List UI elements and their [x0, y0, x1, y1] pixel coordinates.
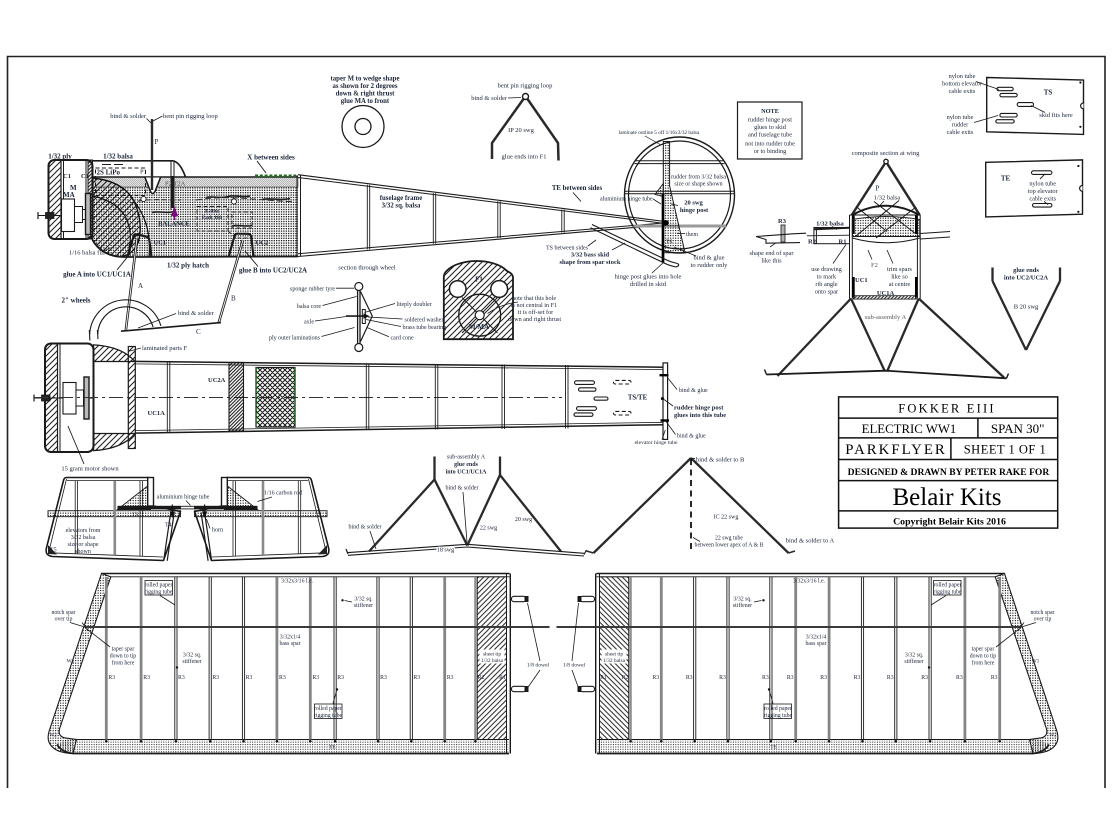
svg-text:nylon tube: nylon tube [1029, 181, 1056, 188]
svg-text:R3: R3 [652, 675, 659, 681]
svg-text:stiffener: stiffener [354, 602, 373, 609]
svg-text:laminated parts F: laminated parts F [142, 345, 188, 352]
svg-text:B: B [231, 295, 236, 303]
svg-text:section through wheel: section through wheel [338, 265, 396, 272]
svg-text:them: them [686, 232, 698, 238]
svg-text:T4: T4 [165, 523, 172, 529]
svg-text:R3: R3 [778, 218, 787, 225]
svg-text:stiffener: stiffener [182, 658, 201, 665]
svg-text:size or shape: size or shape [68, 542, 99, 548]
svg-text:SPAN 30": SPAN 30" [991, 421, 1045, 436]
svg-text:rib angle: rib angle [815, 281, 837, 288]
svg-text:1/8 dowel: 1/8 dowel [527, 663, 550, 669]
svg-text:size or shape shown: size or shape shown [674, 182, 722, 188]
svg-text:3/32x3/16 l.e.: 3/32x3/16 l.e. [281, 579, 314, 585]
svg-text:nylon tube: nylon tube [947, 114, 974, 121]
svg-text:UC2A: UC2A [208, 377, 226, 384]
svg-text:to mark: to mark [817, 274, 837, 281]
svg-text:sub-assembly A: sub-assembly A [447, 455, 486, 461]
svg-text:into UC2/UC2A: into UC2/UC2A [1004, 275, 1049, 282]
svg-text:E-flite: E-flite [205, 209, 220, 215]
svg-text:SHEET 1 OF 1: SHEET 1 OF 1 [964, 442, 1047, 456]
svg-text:aluminium hinge tube: aluminium hinge tube [157, 495, 210, 501]
svg-text:R3: R3 [337, 675, 344, 681]
svg-text:3/32 sq. balsa: 3/32 sq. balsa [382, 203, 421, 210]
svg-text:C1: C1 [81, 173, 89, 180]
svg-text:bind & solder: bind & solder [110, 113, 147, 120]
svg-text:bent pin rigging loop: bent pin rigging loop [498, 83, 553, 90]
svg-text:TS: TS [1044, 89, 1053, 97]
svg-text:3/32 sq.: 3/32 sq. [905, 653, 924, 659]
svg-text:P: P [155, 138, 159, 146]
svg-text:cable exits: cable exits [947, 129, 974, 136]
svg-text:glue ends: glue ends [1013, 267, 1039, 274]
svg-text:FOKKER EIII: FOKKER EIII [898, 402, 995, 416]
svg-text:R3: R3 [686, 675, 693, 681]
svg-text:IC 22 swg: IC 22 swg [714, 515, 739, 521]
svg-text:3/32x3/16 l.e.: 3/32x3/16 l.e. [793, 579, 826, 585]
svg-text:3/32 sq.: 3/32 sq. [733, 597, 752, 603]
svg-text:bass spar: bass spar [279, 641, 300, 647]
svg-text:glues to skid: glues to skid [754, 124, 787, 131]
svg-text:15 gram motor shown: 15 gram motor shown [61, 466, 119, 473]
svg-text:R3: R3 [108, 675, 115, 681]
svg-text:from here: from here [112, 660, 135, 667]
svg-text:TS/TE: TS/TE [628, 395, 648, 402]
svg-text:1/32 balsa: 1/32 balsa [816, 221, 844, 228]
svg-text:1/32 balsa: 1/32 balsa [603, 658, 626, 664]
svg-text:R3: R3 [854, 675, 861, 681]
svg-text:is not central in F1: is not central in F1 [511, 302, 557, 309]
svg-text:UC1: UC1 [154, 240, 167, 247]
svg-text:not into rudder tube: not into rudder tube [745, 141, 795, 148]
svg-text:UC1A: UC1A [148, 410, 166, 417]
svg-text:DESIGNED & DRAWN BY PETER RAKE: DESIGNED & DRAWN BY PETER RAKE FOR [848, 467, 1051, 478]
svg-text:22 swg: 22 swg [480, 526, 497, 532]
svg-text:ELECTRIC WW1: ELECTRIC WW1 [862, 422, 957, 436]
svg-text:fuselage frame: fuselage frame [380, 195, 422, 202]
svg-text:20 swg: 20 swg [684, 200, 703, 207]
svg-text:aluminium hinge tube: aluminium hinge tube [600, 197, 653, 203]
svg-text:R2: R2 [478, 675, 485, 681]
svg-text:soldered washer: soldered washer [405, 318, 444, 324]
svg-text:card cone: card cone [391, 336, 414, 342]
svg-text:C1: C1 [63, 173, 71, 180]
svg-text:notch spar: notch spar [1031, 610, 1055, 616]
svg-text:shape from spar stock: shape from spar stock [560, 259, 621, 266]
svg-text:onto spar: onto spar [815, 289, 839, 296]
svg-text:like so: like so [891, 274, 908, 281]
svg-text:skid fits here: skid fits here [1039, 112, 1073, 119]
svg-text:it is off-set for: it is off-set for [518, 309, 553, 316]
svg-text:18 swg: 18 swg [437, 548, 454, 554]
svg-text:P: P [876, 185, 880, 193]
svg-text:1/16 balsa fill: 1/16 balsa fill [69, 250, 105, 257]
svg-text:MA: MA [63, 191, 75, 199]
svg-text:composite section at wing: composite section at wing [852, 150, 920, 157]
svg-text:R3: R3 [246, 675, 253, 681]
svg-text:NOTE: NOTE [761, 108, 779, 115]
svg-text:R2: R2 [808, 239, 816, 246]
svg-text:into UC1/UC1A: into UC1/UC1A [446, 470, 488, 476]
svg-text:rudder: rudder [952, 122, 969, 129]
svg-text:1/32 balsa: 1/32 balsa [103, 153, 133, 161]
svg-text:down and right thrust: down and right thrust [508, 316, 561, 323]
svg-text:W2: W2 [1049, 733, 1057, 739]
svg-text:or to binding: or to binding [754, 148, 787, 155]
svg-text:trim spars: trim spars [887, 266, 913, 273]
svg-text:R2: R2 [622, 675, 629, 681]
svg-text:at centre: at centre [889, 281, 911, 288]
svg-text:glue B into UC2/UC2A: glue B into UC2/UC2A [239, 267, 307, 275]
svg-text:1/8 dowel: 1/8 dowel [563, 663, 586, 669]
svg-text:TE between sides: TE between sides [552, 185, 603, 192]
svg-text:F1: F1 [475, 276, 483, 284]
svg-text:sub-assembly A: sub-assembly A [865, 314, 907, 321]
svg-text:R3: R3 [820, 675, 827, 681]
svg-text:R3: R3 [921, 675, 928, 681]
svg-text:X between sides: X between sides [247, 154, 295, 162]
svg-text:TS: TS [665, 240, 672, 246]
svg-text:and fuselage tube: and fuselage tube [748, 132, 792, 139]
svg-text:Park 180: Park 180 [202, 215, 222, 221]
svg-text:laminate outline 5 off 1/16x3/: laminate outline 5 off 1/16x3/32 balsa [619, 129, 700, 136]
svg-text:taper spar: taper spar [112, 647, 135, 653]
svg-text:R3: R3 [956, 675, 963, 681]
svg-text:B 20 swg: B 20 swg [1014, 304, 1039, 311]
svg-text:1/16 carbon rod: 1/16 carbon rod [264, 491, 302, 497]
svg-text:W1: W1 [67, 659, 75, 665]
svg-text:IP 20 swg: IP 20 swg [508, 127, 535, 134]
svg-text:1/32 ply: 1/32 ply [48, 153, 72, 161]
svg-text:over tip: over tip [1034, 617, 1052, 623]
svg-text:elevators from: elevators from [66, 527, 101, 534]
svg-text:rigging tube: rigging tube [933, 590, 962, 596]
svg-text:down & right thrust: down & right thrust [336, 91, 395, 98]
svg-text:elevator hinge tube: elevator hinge tube [635, 440, 678, 446]
svg-text:axle: axle [304, 320, 314, 326]
svg-text:rigging tube: rigging tube [314, 713, 343, 719]
svg-text:R3: R3 [991, 675, 998, 681]
svg-text:as shown for 2 degrees: as shown for 2 degrees [332, 83, 397, 90]
svg-text:R3: R3 [887, 675, 894, 681]
svg-text:A: A [138, 282, 143, 290]
svg-text:UC1: UC1 [855, 277, 868, 284]
svg-text:rolled paper: rolled paper [934, 583, 962, 589]
svg-text:Copyright Belair Kits 2016: Copyright Belair Kits 2016 [893, 517, 1006, 528]
svg-text:R1: R1 [600, 675, 607, 681]
svg-text:UC2: UC2 [256, 240, 269, 247]
svg-text:rigging tube: rigging tube [144, 590, 173, 596]
svg-text:bind & glue: bind & glue [693, 255, 724, 262]
svg-text:3/32 bass skid: 3/32 bass skid [571, 252, 610, 259]
svg-text:top elevator: top elevator [1028, 188, 1059, 195]
svg-text:C: C [196, 328, 201, 336]
svg-text:3/32 sq.: 3/32 sq. [183, 653, 202, 659]
svg-text:balsa core: balsa core [297, 304, 321, 310]
svg-text:use drawing: use drawing [811, 266, 842, 273]
svg-text:Belair Kits: Belair Kits [892, 484, 1001, 511]
svg-text:cable exits: cable exits [949, 88, 976, 95]
svg-text:bass spar: bass spar [805, 641, 826, 647]
svg-text:glue ends: glue ends [454, 462, 479, 468]
svg-text:rolled paper: rolled paper [314, 706, 342, 712]
svg-text:1/32 ply hatch: 1/32 ply hatch [167, 262, 209, 270]
svg-text:glues into this tube: glues into this tube [674, 412, 726, 419]
svg-text:R3: R3 [762, 675, 769, 681]
svg-text:stiffener: stiffener [904, 658, 923, 665]
svg-text:TS: TS [132, 512, 138, 518]
svg-text:T5: T5 [50, 548, 57, 554]
svg-text:hinge post glues into hole: hinge post glues into hole [615, 274, 682, 281]
svg-text:stiffener: stiffener [733, 602, 752, 609]
svg-text:taper spar: taper spar [972, 647, 995, 653]
svg-text:rolled paper: rolled paper [145, 583, 173, 589]
svg-text:BALANCE: BALANCE [158, 221, 190, 228]
svg-text:to rudder only: to rudder only [691, 262, 729, 269]
svg-text:bind & solder: bind & solder [178, 310, 215, 317]
svg-text:R3: R3 [212, 675, 219, 681]
svg-text:1/32 balsa: 1/32 balsa [874, 195, 901, 202]
svg-text:3/32x1/4: 3/32x1/4 [280, 635, 301, 641]
svg-text:R3: R3 [279, 675, 286, 681]
svg-text:R3: R3 [312, 675, 319, 681]
svg-text:rolled paper: rolled paper [764, 706, 792, 712]
svg-text:R3: R3 [143, 675, 150, 681]
svg-text:down to tip: down to tip [970, 654, 997, 660]
svg-text:R3: R3 [787, 675, 794, 681]
svg-text:nylon tube: nylon tube [949, 73, 976, 80]
svg-text:glue ends into F1: glue ends into F1 [502, 154, 547, 161]
svg-text:22 swg tube: 22 swg tube [715, 536, 743, 542]
svg-text:R3: R3 [719, 675, 726, 681]
svg-text:PARKFLYER: PARKFLYER [845, 442, 947, 458]
svg-text:1/32 balsa: 1/32 balsa [481, 658, 504, 664]
svg-text:taper M to wedge shape: taper M to wedge shape [331, 76, 400, 83]
svg-text:liteply doubler: liteply doubler [397, 302, 432, 308]
svg-text:TE: TE [1001, 175, 1011, 183]
svg-text:R3: R3 [178, 675, 185, 681]
svg-text:sponge rubber tyre: sponge rubber tyre [290, 287, 335, 293]
svg-text:TE: TE [770, 745, 777, 751]
svg-text:20 swg: 20 swg [515, 517, 532, 523]
svg-text:P2 T2A: P2 T2A [165, 181, 186, 188]
svg-text:R1: R1 [839, 239, 847, 246]
svg-text:3/32 sq.: 3/32 sq. [354, 597, 373, 603]
svg-text:rigging tube: rigging tube [764, 713, 793, 719]
svg-text:sheet tip: sheet tip [483, 652, 501, 658]
svg-text:M/MA: M/MA [469, 323, 489, 331]
svg-text:bind & solder to A: bind & solder to A [786, 538, 835, 545]
svg-text:bind & solder: bind & solder [446, 486, 479, 492]
svg-text:W1: W1 [1032, 659, 1040, 665]
svg-text:rudder hinge post: rudder hinge post [748, 117, 792, 124]
svg-text:3/32x1/4: 3/32x1/4 [806, 635, 827, 641]
svg-text:down to tip: down to tip [110, 654, 137, 660]
svg-text:bind & solder: bind & solder [471, 95, 508, 102]
svg-text:brass tube bearing: brass tube bearing [403, 325, 447, 331]
svg-text:sheet tip: sheet tip [605, 652, 623, 658]
svg-text:glue A into UC1/UC1A: glue A into UC1/UC1A [63, 271, 131, 279]
svg-text:rudder hinge post: rudder hinge post [674, 405, 724, 412]
svg-text:bent pin rigging loop: bent pin rigging loop [163, 113, 218, 120]
svg-text:between lower apex of A & B: between lower apex of A & B [695, 542, 764, 549]
svg-text:from here: from here [972, 660, 995, 667]
svg-text:shape end of spar: shape end of spar [750, 250, 795, 257]
svg-text:bind & solder to B: bind & solder to B [696, 457, 745, 464]
svg-text:2S LiPo: 2S LiPo [97, 169, 121, 177]
svg-text:2" wheels: 2" wheels [62, 297, 91, 305]
svg-text:F2: F2 [871, 262, 878, 269]
svg-text:over tip: over tip [55, 617, 73, 623]
svg-text:TE: TE [329, 745, 336, 751]
svg-text:bind & solder: bind & solder [349, 525, 382, 531]
svg-text:cable exits: cable exits [1029, 196, 1056, 203]
svg-text:shown: shown [75, 549, 91, 555]
svg-text:R3: R3 [380, 675, 387, 681]
svg-text:like this: like this [761, 258, 782, 265]
svg-text:notch spar: notch spar [52, 610, 76, 616]
svg-text:R1: R1 [499, 675, 506, 681]
svg-text:bind & glue: bind & glue [677, 434, 706, 440]
svg-text:bind & glue: bind & glue [679, 388, 708, 394]
svg-text:rudder from 3/32 balsa: rudder from 3/32 balsa [671, 174, 726, 181]
svg-text:hinge post: hinge post [680, 207, 709, 214]
svg-text:horn: horn [212, 528, 223, 534]
svg-text:drilled in skid: drilled in skid [630, 281, 667, 288]
svg-text:W2: W2 [49, 733, 57, 739]
svg-text:ply outer laminations: ply outer laminations [269, 336, 321, 342]
svg-text:glue MA to front: glue MA to front [341, 98, 390, 105]
svg-text:3/32 balsa: 3/32 balsa [71, 535, 96, 541]
svg-text:note that this hole: note that this hole [512, 295, 556, 302]
svg-text:R3: R3 [413, 675, 420, 681]
svg-text:R3: R3 [447, 675, 454, 681]
